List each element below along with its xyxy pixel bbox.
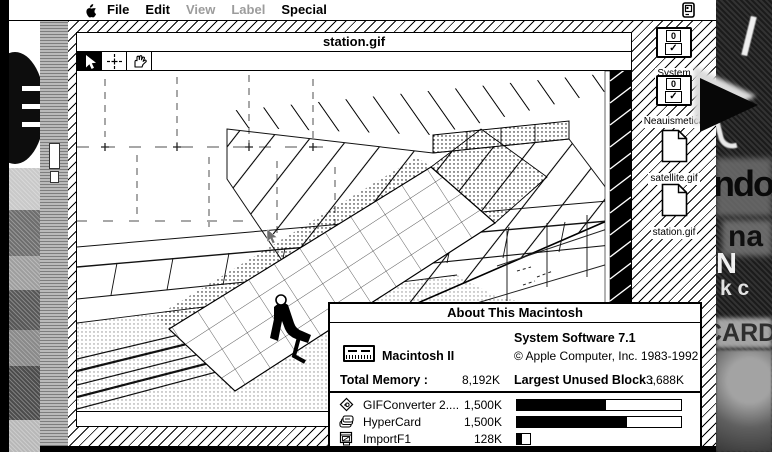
disk-notch <box>22 122 40 127</box>
floppy-disk-icon: 0 ✓ <box>656 75 692 106</box>
floppy-shutter: 0 <box>666 78 681 90</box>
menu-edit[interactable]: Edit <box>137 0 178 20</box>
total-memory-label: Total Memory : <box>340 373 428 387</box>
process-memory: 128K <box>430 432 502 446</box>
menu-label[interactable]: Label <box>223 0 273 20</box>
screenshot-bottom-crop-bar <box>40 446 716 452</box>
disk-notch <box>22 86 40 91</box>
tool-palette <box>77 52 631 71</box>
magazine-text-fragment: k c <box>720 278 749 299</box>
menu-file[interactable]: File <box>99 0 137 20</box>
floppy-label-box: ✓ <box>665 91 682 103</box>
document-icon <box>661 129 688 168</box>
image-window-titlebar[interactable]: station.gif <box>77 33 631 52</box>
memory-usage-bar <box>516 416 682 428</box>
background-left-photo-strip <box>9 0 40 452</box>
magazine-arrow-icon <box>700 78 758 132</box>
stipple-rect <box>49 143 60 169</box>
about-window: About This Macintosh Macintosh II System… <box>328 302 702 452</box>
application-menu-icon[interactable] <box>680 2 697 19</box>
background-stipple-column <box>40 21 68 452</box>
photo-grayscale-blob <box>716 350 772 452</box>
about-window-body: Macintosh II System Software 7.1 © Apple… <box>330 323 700 452</box>
floppy-shutter: 0 <box>666 30 681 42</box>
separator-line <box>330 391 700 393</box>
background-gray-bands <box>9 168 40 452</box>
disk-notch <box>22 104 40 109</box>
process-row-hypercard: HyperCard 1,500K <box>330 414 700 431</box>
process-memory: 1,500K <box>430 398 502 412</box>
photo-fragment <box>741 16 756 56</box>
macintosh-ii-icon <box>343 345 375 362</box>
copyright-text: © Apple Computer, Inc. 1983-1992 <box>514 349 698 363</box>
stipple-rect <box>50 171 59 183</box>
menu-bar: File Edit View Label Special <box>9 0 716 21</box>
hand-tool[interactable] <box>127 52 152 70</box>
magazine-text-fragment: ndo <box>716 166 772 202</box>
hypercard-app-icon <box>339 414 354 429</box>
screen: File Edit View Label Special 0 ✓ System … <box>0 0 772 452</box>
magazine-text-fragment: CARD <box>716 321 772 346</box>
magazine-text-fragment: N <box>716 250 737 279</box>
process-row-gifconverter: GIFConverter 2.... 1,500K <box>330 397 700 414</box>
process-name: HyperCard <box>363 415 421 429</box>
apple-menu-icon[interactable] <box>85 3 99 18</box>
largest-block-value: 3,688K <box>626 373 684 387</box>
arrow-tool[interactable] <box>77 52 102 70</box>
menu-view[interactable]: View <box>178 0 223 20</box>
desktop-icon-satellite-gif[interactable]: satellite.gif <box>630 129 718 186</box>
importf1-app-icon <box>339 431 354 446</box>
computer-name: Macintosh II <box>382 349 454 363</box>
menu-special[interactable]: Special <box>273 0 335 20</box>
total-memory-value: 8,192K <box>440 373 500 387</box>
desktop-icon-station-gif[interactable]: station.gif <box>630 183 718 240</box>
icon-label: station.gif <box>651 227 698 239</box>
gifconverter-app-icon <box>339 397 354 412</box>
crosshair-tool[interactable] <box>102 52 127 70</box>
process-memory: 1,500K <box>430 415 502 429</box>
system-version: System Software 7.1 <box>514 331 636 345</box>
about-window-titlebar[interactable]: About This Macintosh <box>330 304 700 323</box>
background-left-black-bar <box>0 0 9 452</box>
memory-usage-bar <box>516 433 531 445</box>
floppy-label-box: ✓ <box>665 43 682 55</box>
memory-usage-bar <box>516 399 682 411</box>
floppy-disk-icon: 0 ✓ <box>656 27 692 58</box>
process-name: ImportF1 <box>363 432 411 446</box>
document-icon <box>661 183 688 222</box>
